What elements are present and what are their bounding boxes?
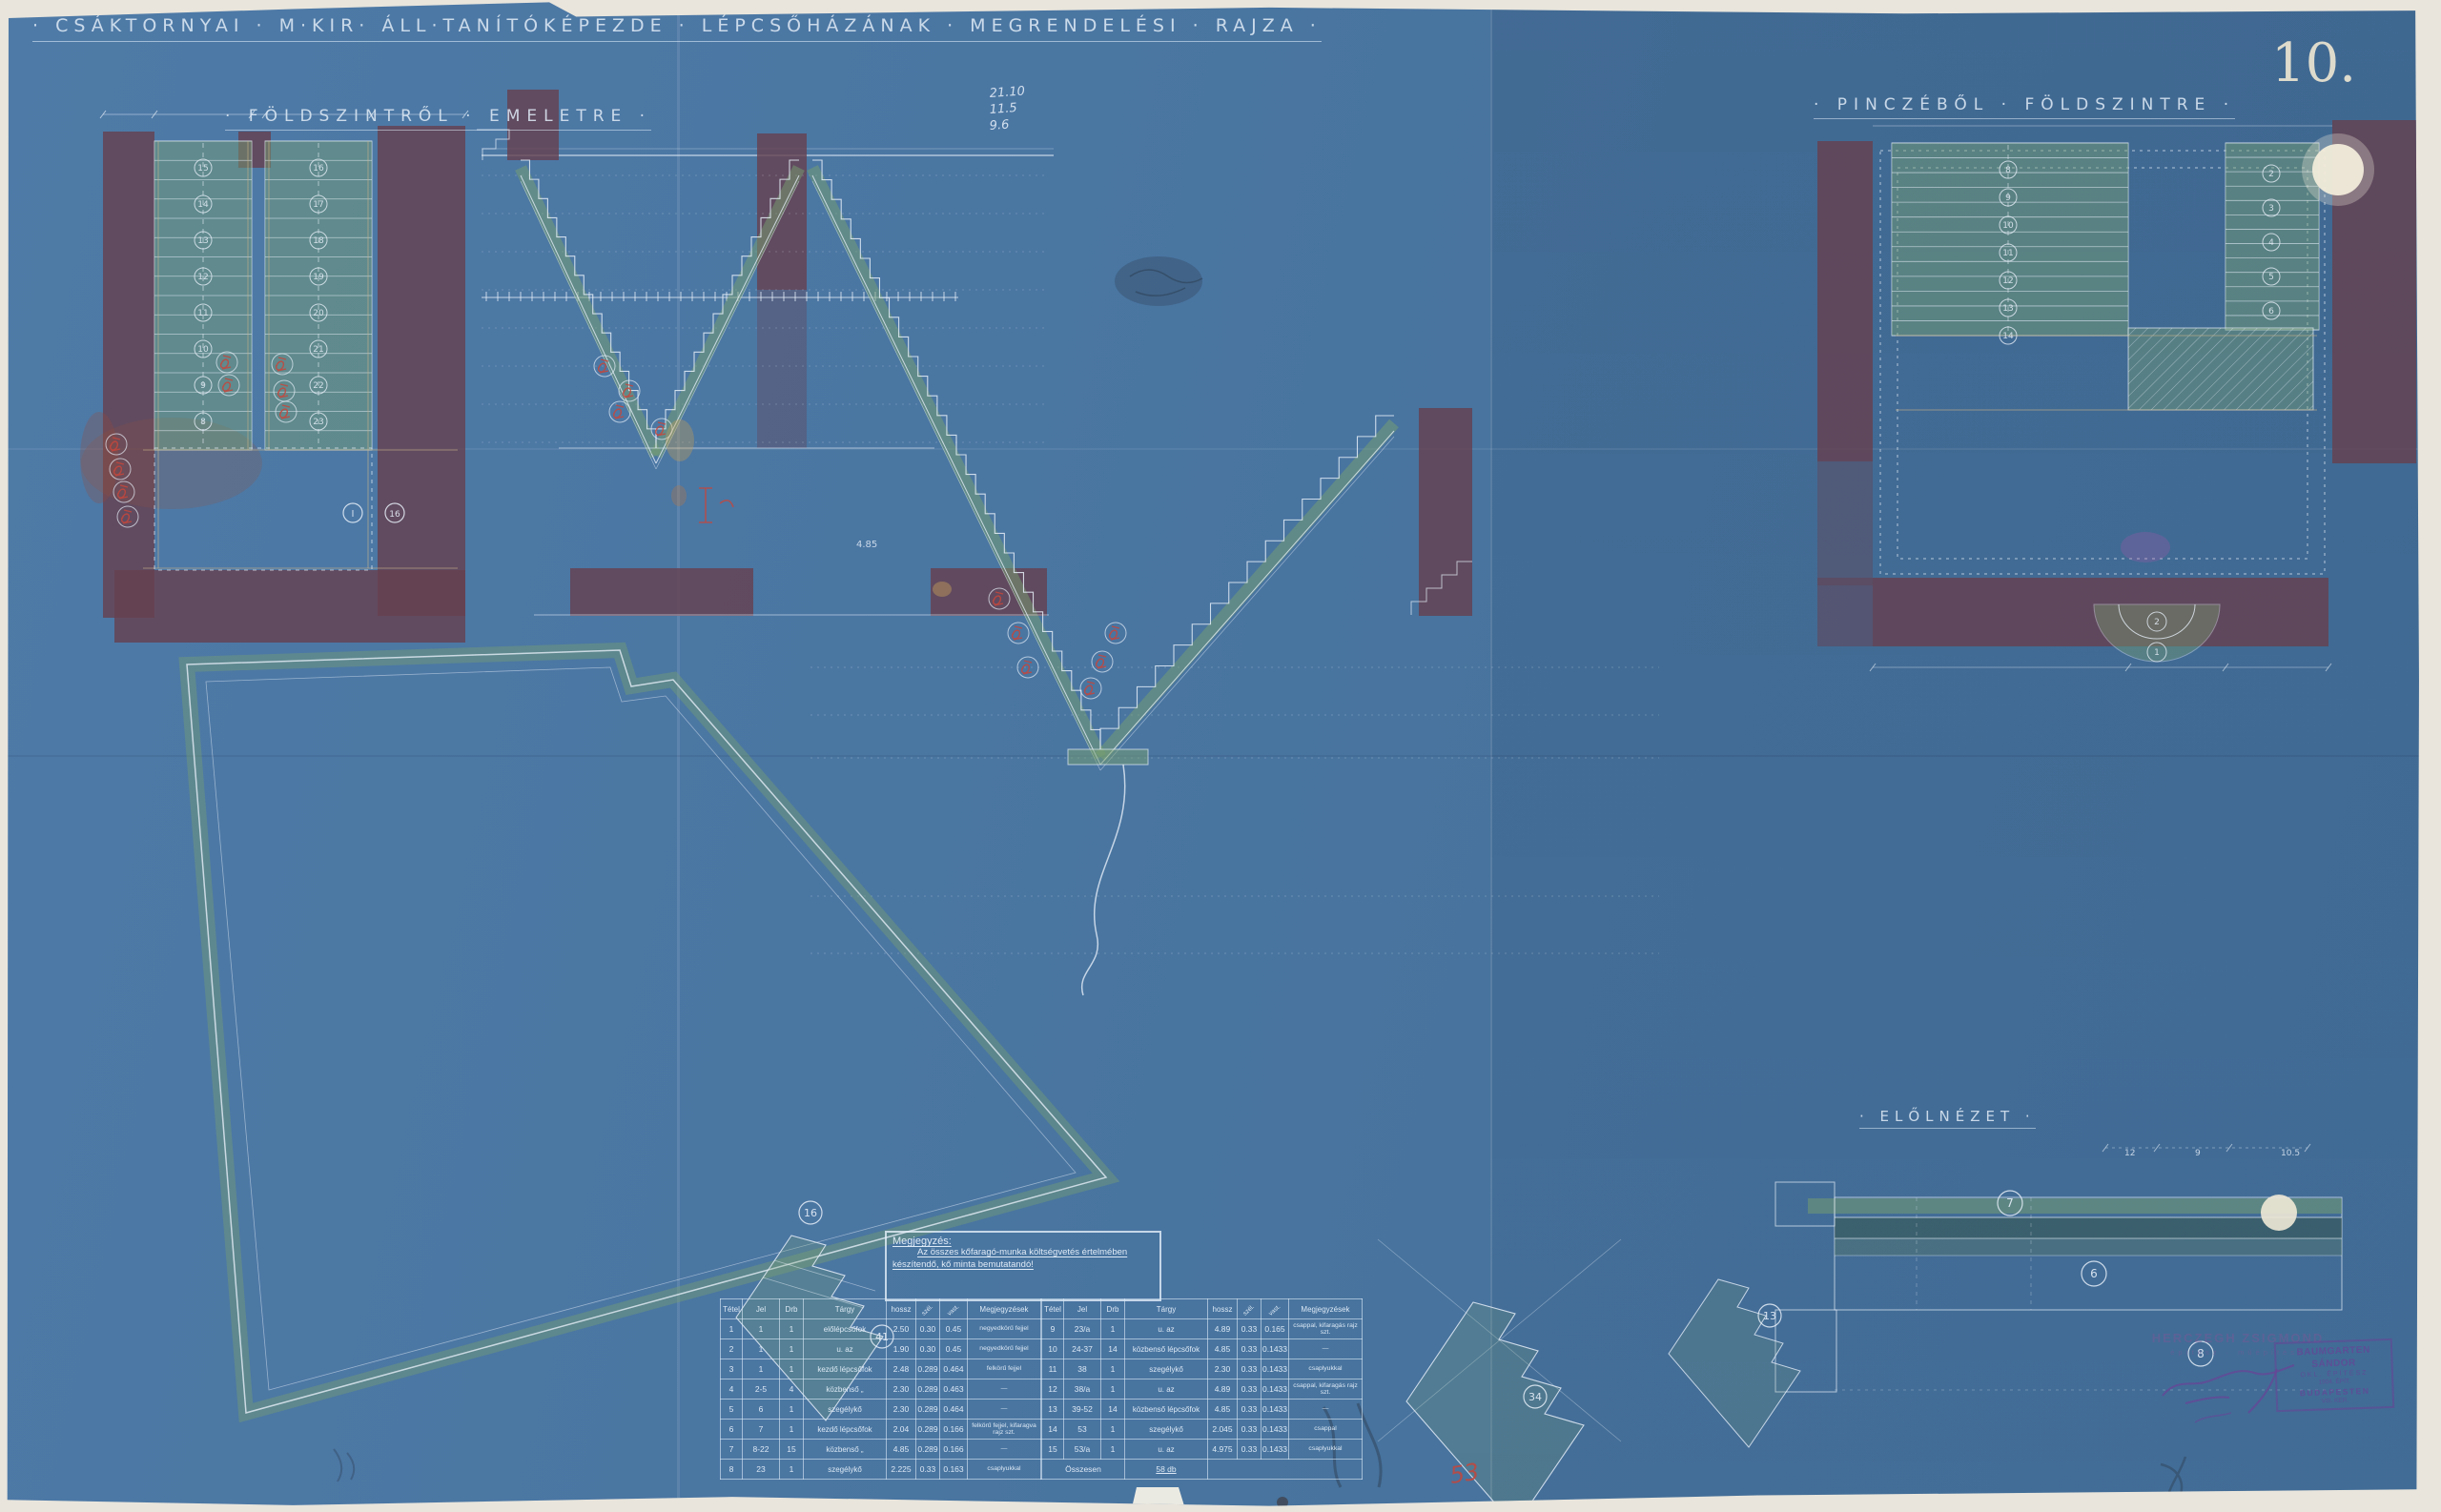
schedule-cell: 2.50 xyxy=(887,1319,916,1339)
schedule-cell: 1 xyxy=(780,1460,804,1480)
schedule-cell: 1 xyxy=(1101,1379,1125,1400)
schedule-total-row: Összesen58 db xyxy=(1042,1460,1363,1480)
step-number: 2 xyxy=(2268,170,2274,179)
schedule-cell: 53/a xyxy=(1064,1440,1101,1460)
schedule-cell: 0.33 xyxy=(916,1460,940,1480)
axon-step-detail xyxy=(1669,1279,1800,1447)
schedule-cell: 0.30 xyxy=(916,1339,940,1359)
edge-tear xyxy=(1131,1487,1186,1512)
schedule-cell: közbenső lépcsőfok xyxy=(1125,1400,1208,1420)
red-item-number: 53 xyxy=(1448,1458,1482,1488)
stain xyxy=(671,485,687,506)
schedule-cell: 4.89 xyxy=(1208,1379,1238,1400)
schedule-cell: kezdő lépcsőfok xyxy=(804,1420,887,1440)
handwritten-dimension: 21.10 xyxy=(989,84,1025,101)
schedule-cell: 0.464 xyxy=(940,1359,968,1379)
reference-number: 7 xyxy=(2006,1196,2014,1210)
schedule-cell: felkörű fejjel xyxy=(968,1359,1041,1379)
schedule-cell: — xyxy=(968,1400,1041,1420)
schedule-row: 211u. az1.900.300.45negyedkörű fejjel xyxy=(721,1339,1041,1359)
drafting-line xyxy=(812,181,1100,770)
schedule-cell: 13 xyxy=(1042,1400,1064,1420)
step-number: 1 xyxy=(2154,648,2160,658)
sheet-number: 10. xyxy=(2271,32,2356,94)
schedule-cell: 1 xyxy=(1101,1420,1125,1440)
schedule-cell: 38/a xyxy=(1064,1379,1101,1400)
schedule-header: Drb xyxy=(1101,1299,1125,1319)
schedule-total-cell xyxy=(1208,1460,1363,1480)
note-line-2: készítendő, kő minta bemutatandó! xyxy=(892,1259,1154,1272)
sheet-title: · CSÁKTORNYAI · M·KIR· ÁLL·TANÍTÓKÉPEZDE… xyxy=(32,15,1322,42)
schedule-cell: 1 xyxy=(743,1359,780,1379)
schedule-header: szél. xyxy=(916,1299,940,1319)
reference-number: 34 xyxy=(1528,1391,1542,1403)
stair-flight-band xyxy=(812,168,1100,757)
schedule-cell: u. az xyxy=(1125,1379,1208,1400)
step-number: 14 xyxy=(2002,332,2014,341)
step-number: 22 xyxy=(313,381,323,391)
schedule-cell: 0.33 xyxy=(1238,1440,1262,1460)
schedule-cell: 0.45 xyxy=(940,1339,968,1359)
schedule-cell: 0.33 xyxy=(1238,1420,1262,1440)
pencil-scribble xyxy=(334,1449,354,1481)
schedule-cell: 15 xyxy=(1042,1440,1064,1460)
wall-masonry xyxy=(570,568,753,616)
schedule-cell: 0.1433 xyxy=(1262,1379,1289,1400)
schedule-cell: 1 xyxy=(1101,1359,1125,1379)
schedule-header: Megjegyzések xyxy=(968,1299,1041,1319)
section-dimension: 4.85 xyxy=(856,540,877,550)
step-number: 8 xyxy=(2005,166,2011,175)
bright-halo xyxy=(2302,133,2374,206)
step-number: 21 xyxy=(313,345,323,355)
schedule-row: 14531szegélykő2.0450.330.1433csappal xyxy=(1042,1420,1363,1440)
schedule-cell: 15 xyxy=(780,1440,804,1460)
wall-masonry xyxy=(1817,461,1873,585)
schedule-cell: 0.289 xyxy=(916,1379,940,1400)
schedule-cell: 0.166 xyxy=(940,1440,968,1460)
schedule-header: Jel xyxy=(743,1299,780,1319)
dark-spec xyxy=(1277,1497,1288,1508)
schedule-header: Tétel xyxy=(721,1299,743,1319)
schedule-cell: 0.163 xyxy=(940,1460,968,1480)
schedule-cell: előlépcsőfok xyxy=(804,1319,887,1339)
check-circle xyxy=(609,401,630,422)
subtitle-left: · FÖLDSZINTRŐL · EMELETRE · xyxy=(225,107,651,131)
step-number: 11 xyxy=(197,309,208,318)
tread-area xyxy=(1068,749,1148,765)
schedule-row: 1238/a1u. az4.890.330.1433csappal, kifar… xyxy=(1042,1379,1363,1400)
reference-number: I xyxy=(352,509,355,520)
wall-masonry xyxy=(1817,141,1873,461)
step-number: 23 xyxy=(313,418,323,427)
schedule-cell: 11 xyxy=(1042,1359,1064,1379)
schedule-cell: 1 xyxy=(780,1359,804,1379)
drafting-line xyxy=(812,175,1100,765)
schedule-cell: 0.463 xyxy=(940,1379,968,1400)
step-number: 14 xyxy=(197,200,209,210)
step-number: 2 xyxy=(2154,618,2160,627)
schedule-cell: 38 xyxy=(1064,1359,1101,1379)
note-line-1: Az összes kőfaragó-munka költségvetés ér… xyxy=(917,1247,1154,1259)
step-number: 9 xyxy=(2005,194,2011,203)
schedule-cell: 8 xyxy=(721,1460,743,1480)
schedule-header: hossz xyxy=(1208,1299,1238,1319)
schedule-cell: 0.166 xyxy=(940,1420,968,1440)
step-number: 12 xyxy=(197,273,208,282)
schedule-header: Tétel xyxy=(1042,1299,1064,1319)
drafting-line xyxy=(1100,431,1394,765)
blueprint-scan: 151413121110981617181920212223I16 21.101… xyxy=(0,0,2441,1512)
schedule-cell: csaplyukkal xyxy=(1289,1359,1363,1379)
section-view-stairs: 21.1011.59.64.85 xyxy=(477,84,1659,995)
schedule-cell: u. az xyxy=(804,1339,887,1359)
note-box: Megjegyzés: Az összes kőfaragó-munka köl… xyxy=(885,1231,1161,1301)
wall-masonry xyxy=(103,132,154,618)
schedule-cell: 2.48 xyxy=(887,1359,916,1379)
blueprint-sheet: 151413121110981617181920212223I16 21.101… xyxy=(0,0,2441,1512)
schedule-cell: közbenső lépcsőfok xyxy=(1125,1339,1208,1359)
schedule-cell: közbenső „ xyxy=(804,1440,887,1460)
check-circle xyxy=(1080,678,1101,699)
schedule-cell: 10 xyxy=(1042,1339,1064,1359)
step-number: 10 xyxy=(2002,221,2014,231)
step-number: 18 xyxy=(313,236,324,246)
step-number: 6 xyxy=(2268,307,2274,317)
schedule-cell: szegélykő xyxy=(804,1460,887,1480)
schedule-cell: szegélykő xyxy=(804,1400,887,1420)
step-number: 8 xyxy=(200,418,206,427)
schedule-cell: 0.1433 xyxy=(1262,1400,1289,1420)
check-circle xyxy=(1092,651,1113,672)
schedule-cell: csappal, kifaragás rajz szt. xyxy=(1289,1379,1363,1400)
red-check-mark xyxy=(1013,626,1022,640)
handwritten-dimension: 9.6 xyxy=(989,118,1010,133)
schedule-cell: felkörű fejjel, kifaragva rajz szt. xyxy=(968,1420,1041,1440)
drafting-line xyxy=(521,181,656,469)
schedule-cell: 2 xyxy=(721,1339,743,1359)
stain xyxy=(666,419,694,461)
step-number: 9 xyxy=(200,381,206,391)
schedule-row: 11381szegélykő2.300.330.1433csaplyukkal xyxy=(1042,1359,1363,1379)
schedule-cell: 4 xyxy=(780,1379,804,1400)
drafting-line xyxy=(521,175,656,463)
red-check-mark xyxy=(1097,655,1106,668)
schedule-row: 42-54közbenső „2.300.2890.463— xyxy=(721,1379,1041,1400)
schedule-header: Jel xyxy=(1064,1299,1101,1319)
pencil-mark xyxy=(2161,1457,2185,1506)
schedule-cell: 14 xyxy=(1101,1400,1125,1420)
step-number: 13 xyxy=(197,236,208,246)
axon-step-detail xyxy=(1406,1302,1584,1512)
schedule-cell: 5 xyxy=(721,1400,743,1420)
drafting-line xyxy=(2305,1144,2310,1152)
stamp-line: BAUMGARTEN SÁNDOR xyxy=(2278,1343,2390,1372)
schedule-cell: 1 xyxy=(780,1420,804,1440)
stair-flight-band xyxy=(1100,423,1394,757)
bright-spot xyxy=(2261,1195,2297,1231)
schedule-cell: szegélykő xyxy=(1125,1359,1208,1379)
schedule-cell: u. az xyxy=(1125,1440,1208,1460)
schedule-left-half: TételJelDrbTárgyhosszszél.vast.Megjegyzé… xyxy=(720,1298,1041,1480)
wall-masonry xyxy=(1817,578,1873,646)
schedule-cell: 0.33 xyxy=(1238,1379,1262,1400)
step-number: 13 xyxy=(2002,304,2013,314)
schedule-header: szél. xyxy=(1238,1299,1262,1319)
step-number: 3 xyxy=(2268,204,2274,214)
schedule-cell: 0.289 xyxy=(916,1359,940,1379)
schedule-cell: 4 xyxy=(721,1379,743,1400)
schedule-cell: 12 xyxy=(1042,1379,1064,1400)
stain xyxy=(933,582,952,597)
schedule-row: 923/a1u. az4.890.330.165csappal, kifarag… xyxy=(1042,1319,1363,1339)
schedule-cell: 0.45 xyxy=(940,1319,968,1339)
schedule-cell: 2.30 xyxy=(887,1379,916,1400)
step-number: 10 xyxy=(197,345,209,355)
signature-strokes xyxy=(2161,1365,2294,1506)
front-dimension: 10.5 xyxy=(2281,1149,2300,1158)
graphite-smudge xyxy=(1115,256,1202,306)
schedule-cell: 2.225 xyxy=(887,1460,916,1480)
schedule-cell: 4.85 xyxy=(1208,1400,1238,1420)
reference-number: 13 xyxy=(1763,1310,1776,1322)
schedule-cell: 6 xyxy=(743,1400,780,1420)
red-check-mark xyxy=(1022,661,1032,674)
schedule-cell: 1.90 xyxy=(887,1339,916,1359)
schedule-header: Tárgy xyxy=(804,1299,887,1319)
front-dimension: 9 xyxy=(2195,1149,2201,1158)
schedule-header: hossz xyxy=(887,1299,916,1319)
schedule-cell: 1 xyxy=(721,1319,743,1339)
schedule-cell: 3 xyxy=(721,1359,743,1379)
schedule-cell: 2.30 xyxy=(1208,1359,1238,1379)
schedule-cell: 0.289 xyxy=(916,1420,940,1440)
schedule-cell: 9 xyxy=(1042,1319,1064,1339)
red-section-mark xyxy=(699,488,733,522)
note-title: Megjegyzés: xyxy=(892,1236,1154,1247)
reference-number: 6 xyxy=(2090,1267,2098,1280)
schedule-cell: csaplyukkal xyxy=(968,1460,1041,1480)
schedule-cell: 0.30 xyxy=(916,1319,940,1339)
schedule-cell: 6 xyxy=(721,1420,743,1440)
schedule-cell: csaplyukkal xyxy=(1289,1440,1363,1460)
schedule-row: 311kezdő lépcsőfok2.480.2890.464felkörű … xyxy=(721,1359,1041,1379)
schedule-header: vast. xyxy=(940,1299,968,1319)
schedule-cell: csappal xyxy=(1289,1420,1363,1440)
schedule-cell: 1 xyxy=(743,1339,780,1359)
schedule-cell: 0.289 xyxy=(916,1400,940,1420)
schedule-cell: 4.85 xyxy=(1208,1339,1238,1359)
wall-masonry xyxy=(757,290,807,448)
schedule-cell: 4.85 xyxy=(887,1440,916,1460)
schedule-row: 111előlépcsőfok2.500.300.45negyedkörű fe… xyxy=(721,1319,1041,1339)
schedule-cell: 0.289 xyxy=(916,1440,940,1460)
schedule-cell: 0.1433 xyxy=(1262,1359,1289,1379)
schedule-header: vast. xyxy=(1262,1299,1289,1319)
signature-underline xyxy=(2195,1413,2231,1422)
wall-masonry xyxy=(114,570,465,643)
front-dimension: 12 xyxy=(2124,1149,2135,1158)
wall-masonry xyxy=(378,126,465,616)
schedule-cell: 0.33 xyxy=(1238,1339,1262,1359)
step-number: 16 xyxy=(313,164,324,174)
schedule-cell: 53 xyxy=(1064,1420,1101,1440)
hatched-landing xyxy=(2128,328,2313,410)
schedule-row: 8231szegélykő2.2250.330.163csaplyukkal xyxy=(721,1460,1041,1480)
schedule-cell: 2-5 xyxy=(743,1379,780,1400)
schedule-cell: negyedkörű fejjel xyxy=(968,1339,1041,1359)
step-number: 5 xyxy=(2268,273,2274,282)
schedule-right-half: TételJelDrbTárgyhosszszél.vast.Megjegyzé… xyxy=(1041,1298,1363,1480)
step-number: 4 xyxy=(2268,238,2274,248)
red-check-mark xyxy=(1085,682,1095,695)
drafting-line xyxy=(1100,437,1394,770)
schedule-cell: 0.33 xyxy=(1238,1319,1262,1339)
schedule-cell: 1 xyxy=(780,1400,804,1420)
schedule-cell: 0.33 xyxy=(1238,1359,1262,1379)
red-check-mark xyxy=(1110,626,1119,640)
reference-number: 16 xyxy=(804,1207,817,1219)
step-number: 19 xyxy=(313,273,324,282)
schedule-cell: 7 xyxy=(721,1440,743,1460)
schedule-cell: 1 xyxy=(780,1339,804,1359)
step-number: 20 xyxy=(313,309,324,318)
schedule-cell: 0.33 xyxy=(1238,1400,1262,1420)
step-number: 11 xyxy=(2002,249,2013,258)
reference-number: 16 xyxy=(389,510,400,520)
schedule-row: 561szegélykő2.300.2890.464— xyxy=(721,1400,1041,1420)
wall-masonry xyxy=(1419,408,1472,616)
schedule-cell: negyedkörű fejjel xyxy=(968,1319,1041,1339)
schedule-cell: 23 xyxy=(743,1460,780,1480)
schedule-cell: u. az xyxy=(1125,1319,1208,1339)
drawing-canvas: 151413121110981617181920212223I16 21.101… xyxy=(0,0,2441,1512)
step-number: 12 xyxy=(2002,276,2013,286)
front-view-label: · ELŐLNÉZET · xyxy=(1859,1108,2036,1129)
schedule-cell: — xyxy=(968,1440,1041,1460)
purple-smudge xyxy=(2121,532,2170,562)
schedule-cell: közbenső „ xyxy=(804,1379,887,1400)
step-number: 17 xyxy=(313,200,323,210)
schedule-total-cell: 58 db xyxy=(1125,1460,1208,1480)
schedule-cell: 4.975 xyxy=(1208,1440,1238,1460)
schedule-total-cell: Összesen xyxy=(1042,1460,1125,1480)
schedule-cell: 7 xyxy=(743,1420,780,1440)
schedule-row: 1024-3714közbenső lépcsőfok4.850.330.143… xyxy=(1042,1339,1363,1359)
break-line xyxy=(1082,765,1125,995)
schedule-header: Tárgy xyxy=(1125,1299,1208,1319)
schedule-cell: 24-37 xyxy=(1064,1339,1101,1359)
check-circle xyxy=(1008,623,1029,644)
stair-flight-band xyxy=(521,168,656,456)
schedule-cell: csappal, kifaragás rajz szt. xyxy=(1289,1319,1363,1339)
stone-schedule-table: TételJelDrbTárgyhosszszél.vast.Megjegyzé… xyxy=(720,1298,1323,1480)
schedule-cell: 39-52 xyxy=(1064,1400,1101,1420)
schedule-cell: 14 xyxy=(1101,1339,1125,1359)
schedule-cell: kezdő lépcsőfok xyxy=(804,1359,887,1379)
schedule-header: Megjegyzések xyxy=(1289,1299,1363,1319)
schedule-cell: szegélykő xyxy=(1125,1420,1208,1440)
schedule-cell: 2.045 xyxy=(1208,1420,1238,1440)
schedule-cell: 8-22 xyxy=(743,1440,780,1460)
schedule-cell: 0.1433 xyxy=(1262,1339,1289,1359)
schedule-cell: 0.1433 xyxy=(1262,1440,1289,1460)
schedule-cell: 23/a xyxy=(1064,1319,1101,1339)
schedule-row: 78-2215közbenső „4.850.2890.166— xyxy=(721,1440,1041,1460)
schedule-cell: 0.1433 xyxy=(1262,1420,1289,1440)
schedule-cell: 0.464 xyxy=(940,1400,968,1420)
check-circle xyxy=(1105,623,1126,644)
handwritten-dimension: 11.5 xyxy=(989,101,1017,117)
schedule-cell: 2.04 xyxy=(887,1420,916,1440)
schedule-cell: — xyxy=(968,1379,1041,1400)
schedule-cell: 4.89 xyxy=(1208,1319,1238,1339)
schedule-row: 1339-5214közbenső lépcsőfok4.850.330.143… xyxy=(1042,1400,1363,1420)
schedule-cell: 1 xyxy=(1101,1440,1125,1460)
architect-box-stamp: BAUMGARTEN SÁNDOR OKL. ÉPÍTÉSZ 1904. ÉPÍ… xyxy=(2274,1338,2394,1412)
schedule-row: 1553/a1u. az4.9750.330.1433csaplyukkal xyxy=(1042,1440,1363,1460)
schedule-cell: 0.165 xyxy=(1262,1319,1289,1339)
schedule-cell: — xyxy=(1289,1339,1363,1359)
schedule-cell: 2.30 xyxy=(887,1400,916,1420)
schedule-cell: 14 xyxy=(1042,1420,1064,1440)
schedule-cell: 1 xyxy=(780,1319,804,1339)
front-mid-band xyxy=(1835,1238,2342,1256)
check-circle xyxy=(1017,657,1038,678)
schedule-cell: 1 xyxy=(743,1319,780,1339)
schedule-cell: — xyxy=(1289,1400,1363,1420)
red-check-mark xyxy=(614,405,624,419)
schedule-row: 671kezdő lépcsőfok2.040.2890.166felkörű … xyxy=(721,1420,1041,1440)
plan-view-ground-to-first: 151413121110981617181920212223I16 xyxy=(80,111,468,643)
subtitle-right: · PINCZÉBŐL · FÖLDSZINTRE · xyxy=(1814,95,2235,119)
schedule-header: Drb xyxy=(780,1299,804,1319)
schedule-cell: 1 xyxy=(1101,1319,1125,1339)
step-number: 15 xyxy=(197,164,208,174)
